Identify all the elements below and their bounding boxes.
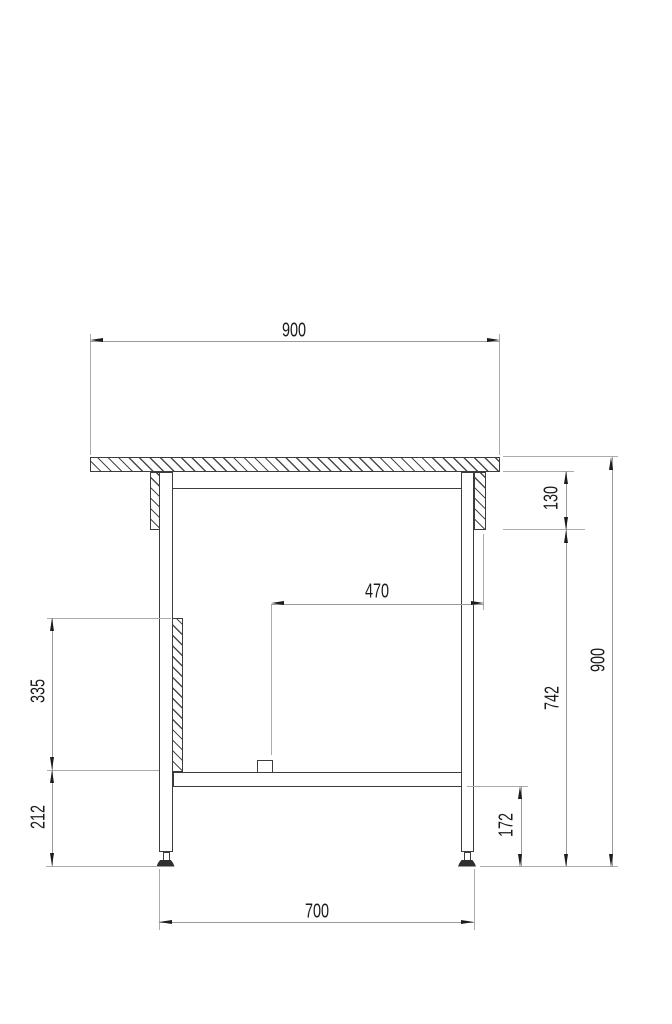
dim-under-top-height: 742: [0, 0, 672, 1024]
extension-line: [159, 869, 160, 930]
stop-block: [257, 760, 273, 774]
dim-arrow: [50, 853, 54, 866]
right-leg: [461, 472, 474, 852]
dim-line: [90, 341, 500, 342]
dim-shelf-floor-gap: 172: [0, 0, 672, 1024]
extension-line: [46, 866, 158, 867]
dim-line: [271, 604, 484, 605]
dim-arrow: [159, 920, 172, 924]
right-corner-bracket: [474, 472, 486, 531]
dim-arrow: [50, 770, 54, 783]
dim-line: [159, 922, 474, 923]
dim-block-offset: 470: [0, 0, 672, 1024]
extension-line: [47, 618, 171, 619]
dim-label: 742: [542, 686, 565, 710]
left-leg: [159, 472, 173, 852]
extension-line: [467, 786, 528, 787]
extension-line: [499, 334, 500, 455]
dim-label: 900: [282, 320, 306, 343]
dim-arrow: [90, 338, 103, 342]
extension-line: [47, 770, 159, 771]
dim-label: 470: [365, 581, 389, 604]
dim-line: [52, 770, 53, 866]
dim-arrow: [564, 471, 568, 484]
left-foot-pad: [157, 860, 175, 867]
right-foot-stem: [464, 852, 471, 861]
dim-leg-span: 700: [0, 0, 672, 1024]
dim-line: [612, 457, 613, 867]
dim-line: [521, 786, 522, 867]
dim-arrow: [50, 618, 54, 631]
dim-apron-drop: 130: [0, 0, 672, 1024]
dim-arrow: [564, 530, 568, 543]
dim-label: 335: [28, 679, 51, 703]
dim-arrow: [609, 854, 613, 867]
dim-lower-leg: 212: [0, 0, 672, 1024]
extension-line: [483, 534, 484, 610]
dim-arrow: [564, 517, 568, 530]
dim-label: 700: [305, 901, 329, 924]
dim-label: 172: [496, 813, 519, 837]
dim-overall-height: 900: [0, 0, 672, 1024]
drawing-canvas: 900 130 742 900 172: [0, 0, 672, 1024]
side-panel: [172, 618, 183, 772]
right-foot-pad: [458, 860, 476, 867]
extension-line: [90, 334, 91, 455]
dim-line: [566, 530, 567, 867]
dim-arrow: [518, 854, 522, 867]
dim-arrow: [271, 601, 284, 605]
dim-arrow: [50, 757, 54, 770]
dim-arrow: [487, 338, 500, 342]
dim-label: 130: [541, 486, 564, 510]
tabletop: [90, 457, 500, 473]
dim-arrow: [564, 854, 568, 867]
dim-panel-height: 335: [0, 0, 672, 1024]
dim-top-width: 900: [0, 0, 672, 1024]
extension-line: [474, 869, 475, 930]
left-foot-stem: [163, 852, 170, 861]
dim-label: 900: [588, 648, 611, 672]
extension-line: [271, 605, 272, 755]
dim-arrow: [518, 786, 522, 799]
dim-arrow: [609, 457, 613, 470]
extension-line: [503, 456, 618, 457]
lower-shelf: [173, 772, 462, 787]
dim-label: 212: [28, 805, 51, 829]
dim-line: [52, 618, 53, 770]
extension-line: [503, 471, 574, 472]
extension-line: [503, 529, 585, 530]
dim-line: [566, 471, 567, 530]
dim-arrow: [461, 920, 474, 924]
extension-line: [480, 866, 618, 867]
apron-rail-line: [173, 488, 462, 489]
